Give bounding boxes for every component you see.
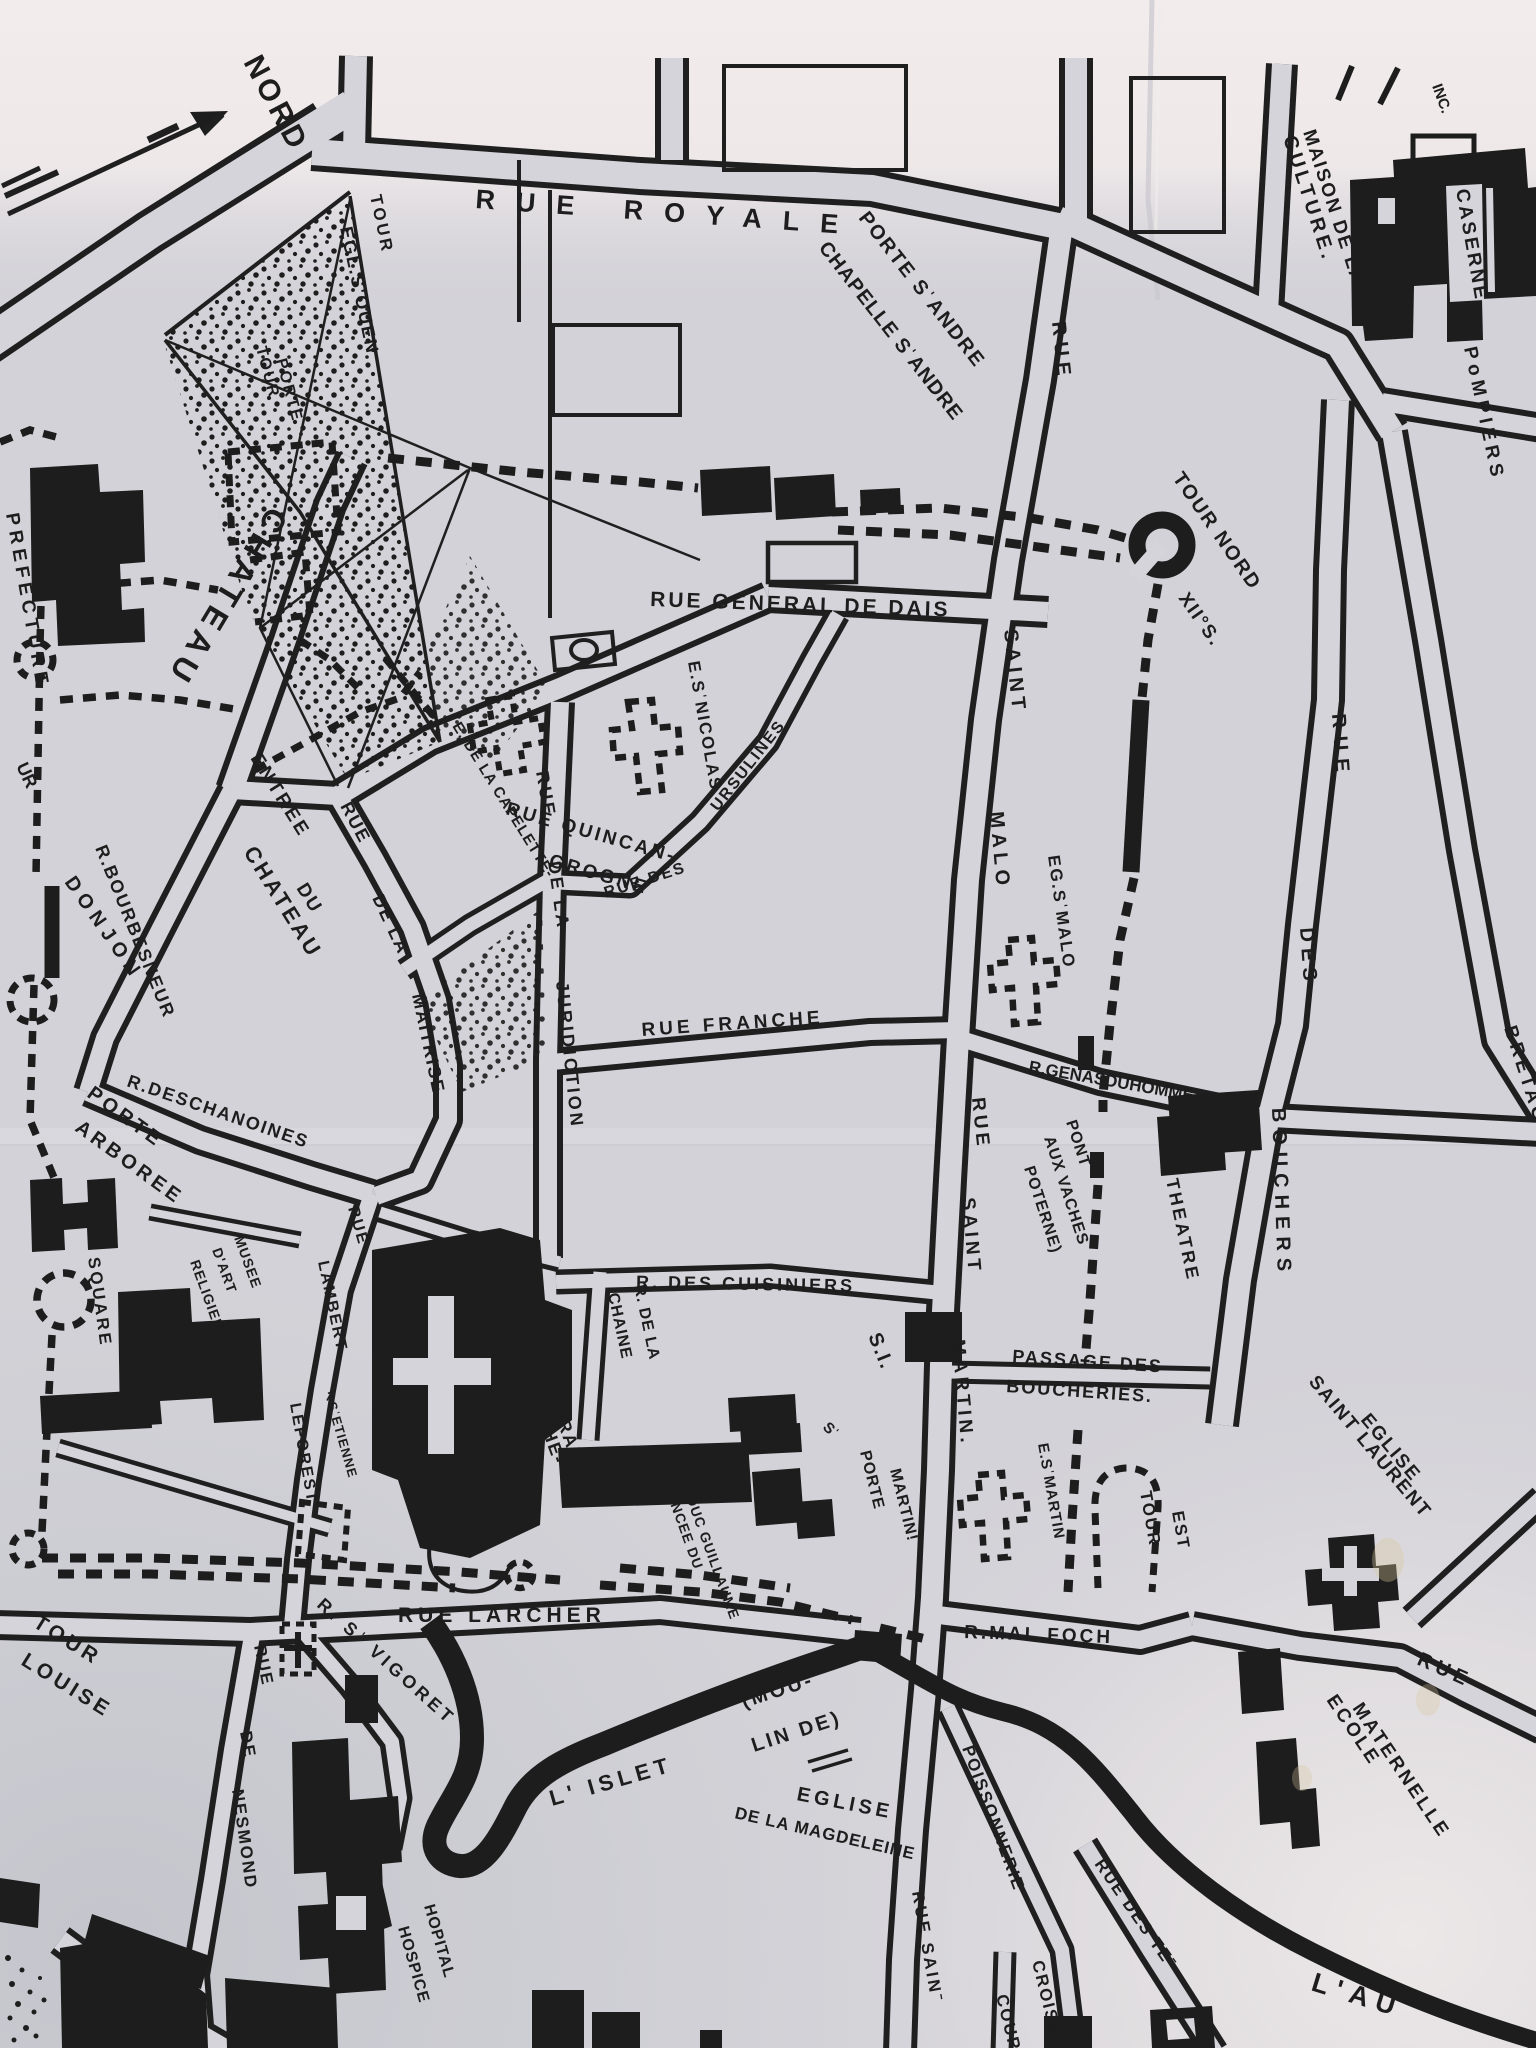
svg-text:RUE: RUE [1327,713,1354,781]
svg-text:R. DES CUISINIERS: R. DES CUISINIERS [636,1272,855,1296]
svg-text:RUE LARCHER: RUE LARCHER [398,1604,606,1627]
svg-text:DES: DES [1295,927,1321,988]
